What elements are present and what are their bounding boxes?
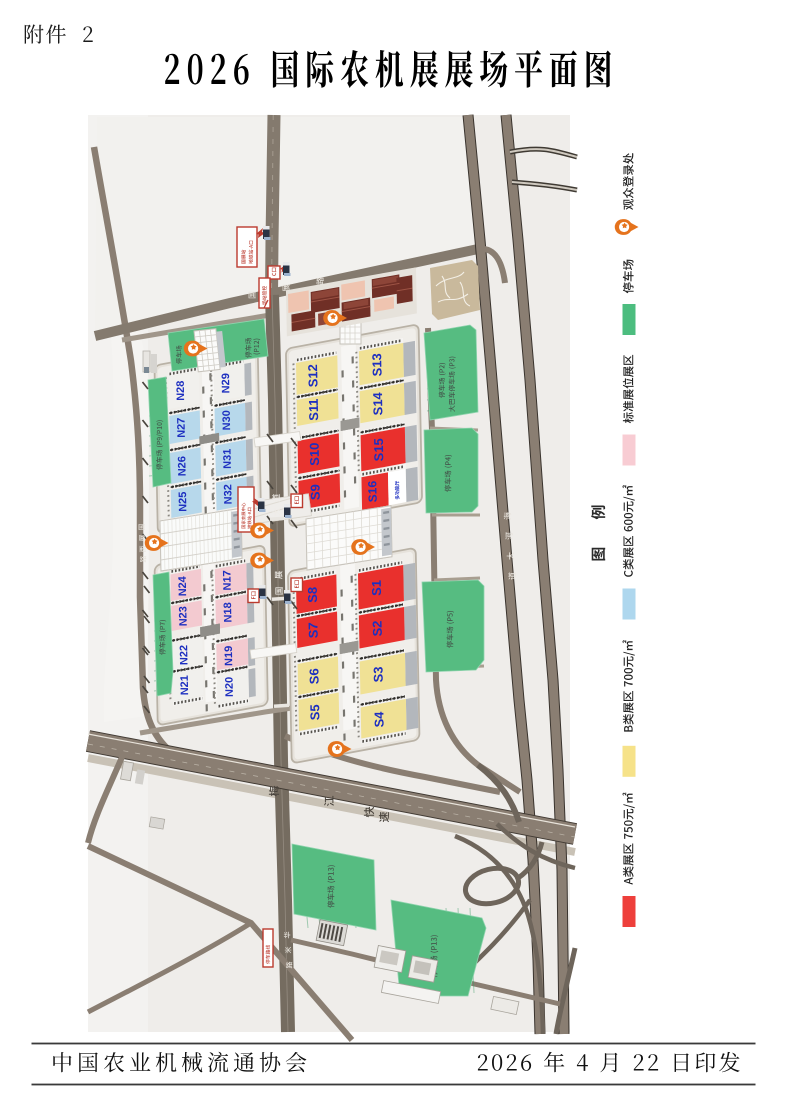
svg-text:N24: N24 bbox=[177, 575, 189, 597]
svg-text:S1: S1 bbox=[369, 579, 384, 598]
svg-text:N26: N26 bbox=[176, 454, 188, 477]
svg-text:N20: N20 bbox=[224, 675, 236, 698]
svg-text:S14: S14 bbox=[370, 390, 385, 417]
svg-text:N30: N30 bbox=[221, 408, 233, 431]
svg-text:S15: S15 bbox=[371, 436, 386, 463]
svg-text:N29: N29 bbox=[220, 371, 232, 394]
svg-text:N32: N32 bbox=[222, 483, 234, 505]
svg-text:N19: N19 bbox=[223, 644, 235, 667]
svg-text:N23: N23 bbox=[177, 605, 189, 627]
svg-text:S12: S12 bbox=[305, 362, 320, 389]
svg-text:N22: N22 bbox=[178, 644, 190, 666]
svg-text:S11: S11 bbox=[306, 397, 321, 422]
svg-text:N18: N18 bbox=[222, 600, 234, 623]
svg-text:S10: S10 bbox=[307, 441, 322, 468]
svg-text:N28: N28 bbox=[175, 379, 187, 402]
svg-text:N27: N27 bbox=[176, 416, 188, 439]
svg-text:N21: N21 bbox=[179, 674, 191, 696]
svg-text:S13: S13 bbox=[369, 351, 384, 378]
svg-text:N17: N17 bbox=[222, 568, 234, 591]
svg-text:S16: S16 bbox=[365, 479, 379, 503]
svg-text:N31: N31 bbox=[222, 448, 234, 470]
svg-text:N25: N25 bbox=[177, 490, 189, 513]
